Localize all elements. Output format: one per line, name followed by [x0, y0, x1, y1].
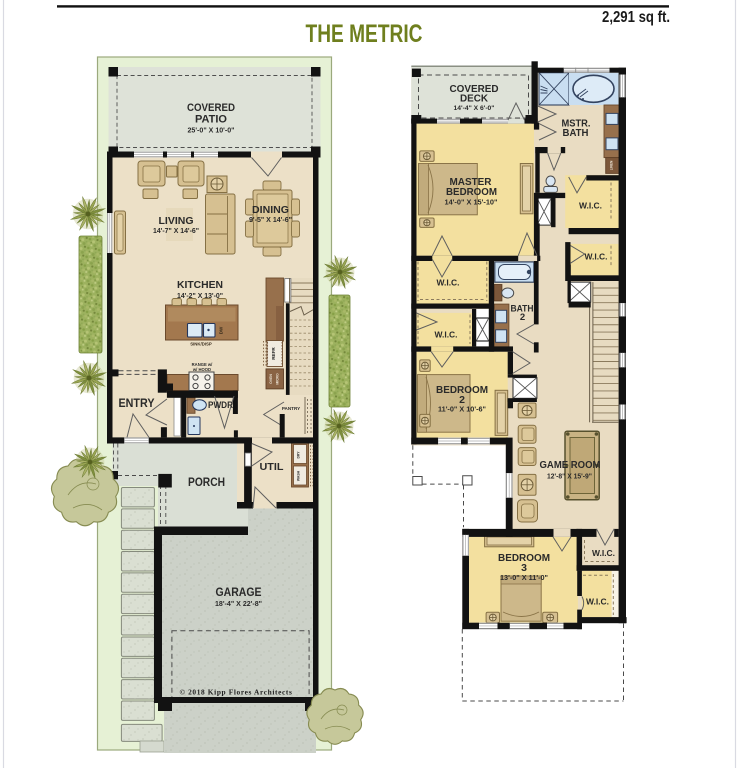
svg-text:25'-0" X 10'-0": 25'-0" X 10'-0" — [188, 126, 235, 135]
svg-text:THE METRIC: THE METRIC — [306, 20, 423, 48]
svg-text:W.I.C.: W.I.C. — [585, 252, 608, 262]
svg-text:W.I.C.: W.I.C. — [435, 330, 458, 340]
svg-text:DW: DW — [219, 326, 224, 334]
svg-text:PWDR: PWDR — [208, 400, 233, 411]
svg-text:DRY: DRY — [297, 451, 301, 459]
svg-text:14'-4" X 6'-0": 14'-4" X 6'-0" — [454, 105, 495, 112]
svg-text:BEDROOM: BEDROOM — [446, 186, 497, 198]
svg-text:COVERED: COVERED — [187, 102, 235, 114]
svg-text:GAME ROOM: GAME ROOM — [540, 459, 601, 471]
svg-text:BATH: BATH — [563, 128, 589, 139]
svg-text:W.I.C.: W.I.C. — [586, 597, 609, 607]
svg-text:PANTRY: PANTRY — [282, 406, 300, 411]
svg-text:2: 2 — [459, 394, 465, 406]
svg-text:UTIL: UTIL — [260, 461, 285, 473]
svg-text:W.I.C.: W.I.C. — [437, 278, 460, 288]
svg-text:13'-0" X 11'-0": 13'-0" X 11'-0" — [500, 575, 548, 582]
svg-text:PORCH: PORCH — [188, 477, 225, 489]
svg-text:14'-0" X 15'-10": 14'-0" X 15'-10" — [445, 200, 498, 207]
svg-text:WASH: WASH — [297, 470, 301, 481]
svg-text:LIVING: LIVING — [159, 215, 194, 227]
svg-text:© 2018 Kipp Flores Architects: © 2018 Kipp Flores Architects — [180, 689, 293, 697]
svg-text:11'-0" X 10'-6": 11'-0" X 10'-6" — [438, 407, 486, 414]
svg-text:MICRO: MICRO — [276, 373, 280, 385]
svg-text:GARAGE: GARAGE — [216, 587, 262, 599]
svg-text:LINEN: LINEN — [610, 160, 614, 170]
svg-text:OVEN: OVEN — [269, 374, 273, 384]
svg-text:w/ HOOD: w/ HOOD — [192, 367, 211, 372]
svg-text:14'-7" X 14'-6": 14'-7" X 14'-6" — [153, 228, 199, 235]
svg-text:SINK/DISP: SINK/DISP — [190, 342, 212, 347]
svg-text:18'-4" X 22'-8": 18'-4" X 22'-8" — [215, 599, 262, 608]
svg-text:REFR: REFR — [271, 347, 276, 360]
svg-text:KITCHEN: KITCHEN — [177, 279, 223, 291]
svg-text:9'-5" X 14'-6": 9'-5" X 14'-6" — [249, 217, 292, 224]
svg-text:DINING: DINING — [252, 204, 289, 216]
svg-text:PATIO: PATIO — [195, 114, 227, 126]
svg-text:12'-8" X 15'-9": 12'-8" X 15'-9" — [547, 474, 592, 481]
svg-text:14'-2" X 13'-0": 14'-2" X 13'-0" — [177, 293, 223, 300]
svg-text:2,291 sq ft.: 2,291 sq ft. — [602, 9, 670, 26]
svg-text:W.I.C.: W.I.C. — [579, 201, 602, 211]
svg-text:3: 3 — [521, 562, 527, 574]
svg-text:W.I.C.: W.I.C. — [592, 548, 615, 558]
svg-text:2: 2 — [520, 312, 525, 323]
svg-text:DECK: DECK — [460, 94, 489, 105]
svg-text:ENTRY: ENTRY — [119, 398, 155, 410]
